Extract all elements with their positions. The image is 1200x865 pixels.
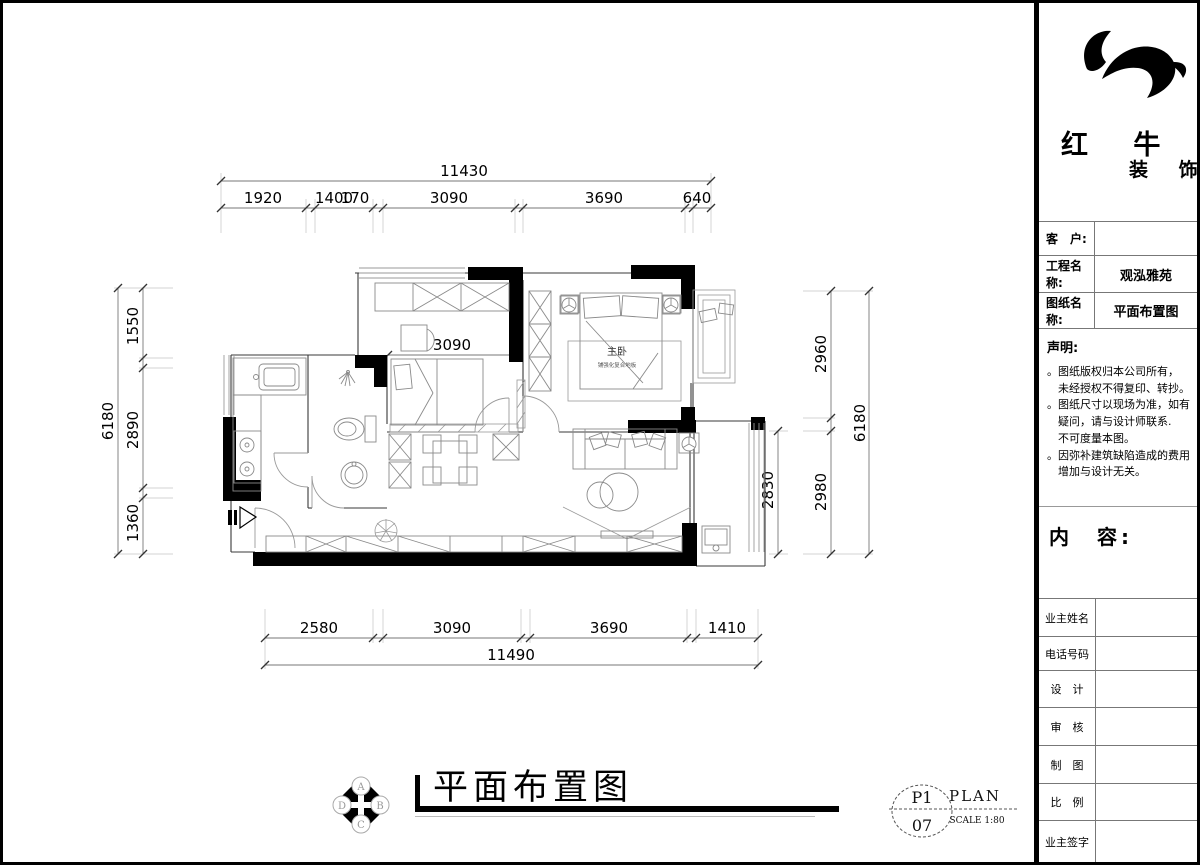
row-phone: 电话号码 bbox=[1039, 636, 1197, 670]
statement-line: 增加与设计无关。 bbox=[1047, 464, 1191, 481]
statement-line: 疑问，请与设计师联系. bbox=[1047, 414, 1191, 431]
entry-arrow bbox=[228, 507, 256, 528]
compass-letter-a: A bbox=[356, 782, 365, 793]
project-label: 工程名称: bbox=[1039, 256, 1095, 292]
drafter-label: 制 图 bbox=[1039, 746, 1096, 783]
row-drafter: 制 图 bbox=[1039, 745, 1197, 783]
compass-letter-b: B bbox=[376, 801, 383, 812]
phone-label: 电话号码 bbox=[1039, 637, 1096, 670]
scale-row-value bbox=[1096, 784, 1197, 820]
dim-top-seg: 3090 bbox=[430, 189, 468, 207]
dim-left-seg: 1550 bbox=[124, 307, 142, 345]
closet bbox=[375, 283, 509, 311]
scale-row-label: 比 例 bbox=[1039, 784, 1096, 820]
dim-left-seg: 1360 bbox=[124, 504, 142, 542]
kitchen bbox=[233, 358, 306, 491]
field-row-client: 客 户: bbox=[1039, 221, 1197, 255]
title-underline-stub bbox=[415, 775, 420, 809]
dim-top-seg: 170 bbox=[341, 189, 370, 207]
dim-balcony-depth: 2830 bbox=[759, 471, 777, 509]
compass-letter-c: C bbox=[357, 820, 365, 831]
dim-left-seg: 2890 bbox=[124, 411, 142, 449]
phone-value bbox=[1096, 637, 1197, 670]
row-scale: 比 例 bbox=[1039, 783, 1197, 820]
field-row-drawing: 图纸名称: 平面布置图 bbox=[1039, 292, 1197, 328]
drawing-value: 平面布置图 bbox=[1095, 293, 1197, 328]
second-bedroom bbox=[375, 283, 509, 425]
drafter-value bbox=[1096, 746, 1197, 783]
toilet bbox=[365, 416, 376, 442]
living-room bbox=[563, 429, 730, 553]
desk bbox=[401, 325, 427, 351]
sheet-number: 07 bbox=[912, 816, 932, 835]
statement-line: 不可度量本图。 bbox=[1047, 431, 1191, 448]
project-value: 观泓雅苑 bbox=[1095, 256, 1197, 292]
statement-section: 声明: 。图纸版权归本公司所有， 未经授权不得复印、转抄。 。图纸尺寸以现场为准… bbox=[1039, 328, 1197, 506]
dim-top-seg: 1920 bbox=[244, 189, 282, 207]
scale-label: SCALE 1:80 bbox=[949, 816, 1004, 826]
floor-plan: 11430 1920 1400 170 3090 3690 640 2580 3… bbox=[3, 3, 1034, 703]
dim-top-seg: 640 bbox=[683, 189, 712, 207]
walls bbox=[223, 265, 765, 566]
statement-line: 。图纸版权归本公司所有， bbox=[1047, 364, 1191, 381]
dim-bottom-seg: 2580 bbox=[300, 619, 338, 637]
dim-right-seg: 2980 bbox=[812, 473, 830, 511]
logo-area: 红 牛 装 饰 bbox=[1039, 3, 1197, 221]
row-owner-name: 业主姓名 bbox=[1039, 598, 1197, 636]
owner-signature-value bbox=[1096, 821, 1197, 862]
statement-line: 未经授权不得复印、转抄。 bbox=[1047, 381, 1191, 398]
drawing-title: 平面布置图 bbox=[433, 759, 633, 810]
plant bbox=[375, 519, 397, 542]
dim-bottom-total: 11490 bbox=[487, 646, 535, 664]
client-label: 客 户: bbox=[1039, 222, 1095, 255]
hatch-strips bbox=[390, 380, 525, 432]
plan-label: PLAN bbox=[949, 787, 1001, 805]
client-value bbox=[1095, 222, 1197, 255]
dim-bottom-seg: 3090 bbox=[433, 619, 471, 637]
compass-symbol: A B C D bbox=[329, 773, 393, 837]
auditor-label: 审 核 bbox=[1039, 708, 1096, 745]
owner-name-value bbox=[1096, 599, 1197, 636]
content-section: 内 容: bbox=[1039, 506, 1197, 598]
statement-line: 。因弥补建筑缺陷造成的费用 bbox=[1047, 448, 1191, 465]
dim-left-total: 6180 bbox=[99, 402, 117, 440]
field-row-project: 工程名称: 观泓雅苑 bbox=[1039, 255, 1197, 292]
title-underline-thin bbox=[415, 816, 815, 817]
dimension-labels: 11430 1920 1400 170 3090 3690 640 2580 3… bbox=[99, 162, 869, 664]
statement-line: 。图纸尺寸以现场为准，如有 bbox=[1047, 397, 1191, 414]
stove bbox=[234, 431, 261, 483]
bathroom bbox=[334, 371, 376, 489]
sheet-number-block: P1 07 PLAN SCALE 1:80 bbox=[885, 771, 1035, 846]
dim-top-seg: 3690 bbox=[585, 189, 623, 207]
content-label: 内 容: bbox=[1049, 525, 1133, 549]
designer-label: 设 计 bbox=[1039, 671, 1096, 707]
dining bbox=[389, 434, 519, 488]
washing-machine bbox=[702, 526, 730, 553]
auditor-value bbox=[1096, 708, 1197, 745]
drawing-sheet: 11430 1920 1400 170 3090 3690 640 2580 3… bbox=[0, 0, 1200, 865]
bay-cushions bbox=[699, 303, 733, 322]
room-label-master: 主卧 bbox=[607, 345, 627, 358]
statement-title: 声明: bbox=[1047, 337, 1191, 356]
room-label-master-sub: 铺强化复合地板 bbox=[598, 361, 637, 369]
coffee-table bbox=[600, 473, 638, 511]
row-auditor: 审 核 bbox=[1039, 707, 1197, 745]
owner-signature-label: 业主签字 bbox=[1039, 821, 1096, 862]
doors bbox=[255, 396, 559, 548]
dim-bottom-seg: 1410 bbox=[708, 619, 746, 637]
dim-inner-width: 3090 bbox=[433, 336, 471, 354]
dining-table bbox=[433, 441, 467, 483]
dim-bottom-seg: 3690 bbox=[590, 619, 628, 637]
company-logo-icon bbox=[1047, 21, 1197, 131]
row-owner-signature: 业主签字 bbox=[1039, 820, 1197, 862]
drawing-area: 11430 1920 1400 170 3090 3690 640 2580 3… bbox=[3, 3, 1034, 862]
shower-head bbox=[339, 371, 355, 387]
row-designer: 设 计 bbox=[1039, 670, 1197, 707]
dim-right-total: 6180 bbox=[851, 404, 869, 442]
title-block: 红 牛 装 饰 客 户: 工程名称: 观泓雅苑 图纸名称: 平面布置图 声明: … bbox=[1034, 3, 1197, 862]
company-suffix: 装 饰 bbox=[1129, 155, 1200, 182]
dim-top-total: 11430 bbox=[440, 162, 488, 180]
designer-value bbox=[1096, 671, 1197, 707]
drawing-label: 图纸名称: bbox=[1039, 293, 1095, 328]
owner-name-label: 业主姓名 bbox=[1039, 599, 1096, 636]
dim-right-seg: 2960 bbox=[812, 335, 830, 373]
sheet-page: P1 bbox=[912, 788, 933, 807]
compass-letter-d: D bbox=[338, 801, 346, 812]
